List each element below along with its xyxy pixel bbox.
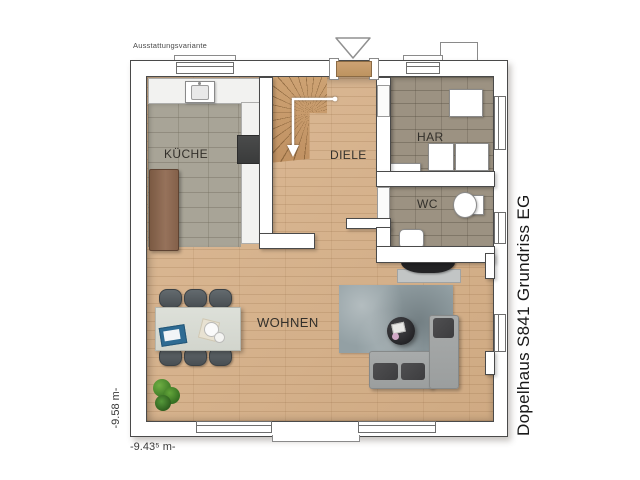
wall-wc-wohnen: [376, 246, 495, 263]
window-wohnen-left: [196, 421, 272, 433]
sink-basin: [191, 85, 209, 100]
wc-door: [377, 187, 390, 219]
wall-har-wc: [376, 171, 495, 187]
dimension-left: -9.58 m-: [110, 363, 122, 453]
wall-pier: [485, 253, 495, 279]
floorplan-canvas: Ausstattungsvariante Dopelhaus S841 Grun…: [0, 0, 640, 480]
window-har-side: [494, 96, 506, 150]
kitchen-sink: [185, 81, 215, 103]
dimension-bottom: -9.43⁵ m-: [130, 441, 176, 453]
interior-floor: [146, 76, 494, 422]
kitchen-counter-side: [241, 102, 261, 244]
window-kitchen: [176, 62, 234, 74]
dining-table: [155, 307, 241, 351]
wall-pier-bottom: [272, 435, 360, 442]
toilet: [453, 192, 477, 218]
har-door: [377, 85, 390, 117]
tablet: [159, 324, 188, 347]
wall-stub-kitchen: [259, 233, 315, 249]
window-wohnen-side: [494, 314, 506, 352]
coffee-table: [387, 317, 415, 345]
entrance-door: [336, 61, 372, 77]
kitchen-cabinet: [149, 169, 179, 251]
entrance-marker-icon: [333, 36, 373, 60]
sink-faucet: [198, 82, 201, 85]
decor-ball: [392, 333, 399, 340]
chaise-cushion: [433, 318, 454, 338]
window-wohnen-right: [358, 421, 436, 433]
room-label-wc: WC: [417, 197, 438, 211]
cooktop: [237, 135, 260, 164]
sofa-cushion: [401, 363, 425, 380]
room-label-diele: DIELE: [330, 148, 367, 162]
plant-foliage: [155, 395, 171, 411]
room-label-kueche: KÜCHE: [164, 147, 208, 161]
variant-label: Ausstattungsvariante: [133, 41, 207, 50]
room-label-har: HAR: [417, 130, 444, 144]
room-label-wohnen: WOHNEN: [257, 315, 319, 330]
wall-pier: [485, 351, 495, 375]
dining-chair: [159, 289, 182, 308]
plan-title: Dopelhaus S841 Grundriss EG: [514, 196, 536, 436]
plate-small: [214, 332, 225, 343]
potted-plant: [151, 377, 183, 413]
har-appliance-top: [449, 89, 483, 117]
dining-chair: [209, 289, 232, 308]
wall-kitchen-diele: [259, 77, 273, 237]
har-appliance-left: [428, 143, 454, 171]
har-appliance-right: [455, 143, 489, 171]
sofa-cushion: [373, 363, 398, 380]
tablet-screen: [163, 329, 180, 341]
dining-chair: [184, 289, 207, 308]
window-wc: [494, 212, 506, 244]
window-har-top: [406, 62, 440, 74]
